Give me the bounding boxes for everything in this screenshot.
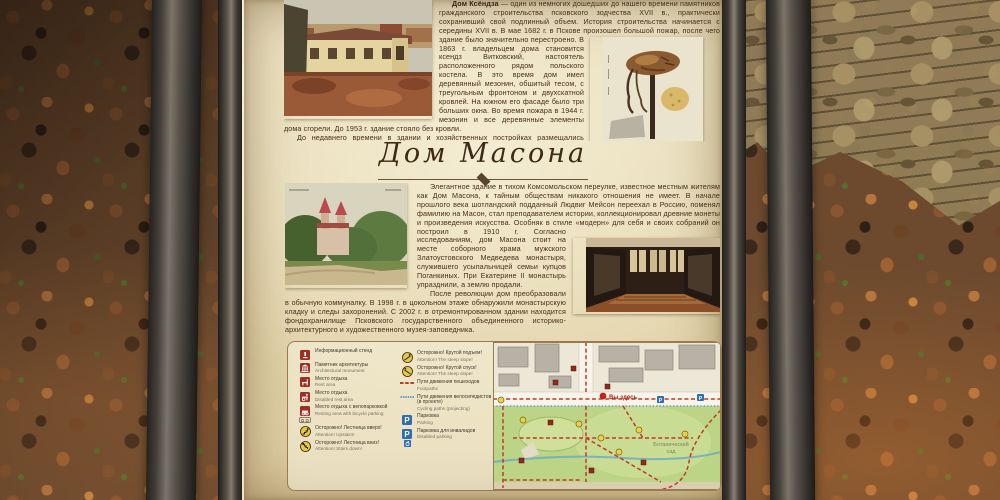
legend-item: Осторожно! Крутой спуск!Attention! The s… [400,366,494,378]
title-divider [378,176,588,183]
svg-text:P: P [699,396,703,402]
legend-item: Информационный стенд [298,349,392,360]
legend-item: Осторожно! Лестница вверх!Attention! Ups… [298,426,392,438]
legend-item: Место отдыхаRest area [298,377,392,388]
ksendz-lead: Дом Ксёндза [452,0,499,8]
svg-text:P: P [404,416,410,425]
parking-icon: P [400,414,414,425]
section-ksendz-house: Дом Ксёндза — один из немногих дошедших … [284,0,720,141]
photo-scene: Дом Ксёндза — один из немногих дошедших … [0,0,1000,500]
steep-ascent-icon [400,351,414,363]
board-title: Дом Масона [244,137,722,171]
board-paper: Дом Ксёндза — один из немногих дошедших … [242,0,722,500]
footpath-line-icon [400,380,414,385]
cycling-path-line-icon [400,395,414,400]
map-park [493,406,721,490]
stairs-down-icon [298,441,312,453]
legend-column-left: Информационный стенд Памятник архитектур… [298,349,392,485]
sign-post-right [766,0,815,500]
svg-text:P: P [659,398,663,404]
svg-text:Ботанический: Ботанический [653,441,688,448]
legend-item: P ПарковкаParking [400,414,494,425]
sign-post-left [146,0,202,500]
section-mason-house: Элегантное здание в тихом Комсомольском … [285,183,720,339]
svg-text:P: P [404,430,410,439]
rest-area-icon [298,377,312,388]
disabled-parking-icon: P [400,429,414,448]
architectural-monument-icon [298,363,312,374]
legend-column-right: Осторожно! Крутой подъем!Attention! The … [400,349,494,485]
park-map: P P Вы здесь Ботанический сад [493,342,721,490]
legend-item: Осторожно! Лестница вниз!Attention! Stai… [298,441,392,453]
legend-item: Памятник архитектурыArchitectural monume… [298,363,392,374]
legend-item: Место отдыха с велопарковкойResting area… [298,405,392,423]
info-stand-icon [298,349,312,360]
steep-descent-icon [400,366,414,378]
old-town-painting [284,0,432,119]
bicycle-rest-area-icon [298,405,312,423]
artifact-illustration [590,37,703,141]
legend-item: P Парковка для инвалидовDisabled parking [400,429,494,448]
legend-item: Место отдыхаDisabled rest area [298,391,392,402]
disabled-rest-area-icon [298,391,312,402]
stairs-up-icon [298,426,312,438]
interior-photo [573,238,720,315]
svg-text:сад: сад [666,449,676,455]
svg-text:Вы здесь: Вы здесь [609,395,638,401]
map-legend-box: Информационный стенд Памятник архитектур… [287,341,722,491]
legend-item: Пути движения пешеходовFootpaths [400,380,494,391]
legend-item: Пути движения велосипедистов (в проекте)… [400,395,494,412]
legend-item: Осторожно! Крутой подъем!Attention! The … [400,351,494,363]
house-postcard [285,183,407,288]
map-legend: Информационный стенд Памятник архитектур… [298,349,494,485]
information-board: Дом Ксёндза — один из немногих дошедших … [218,0,746,500]
